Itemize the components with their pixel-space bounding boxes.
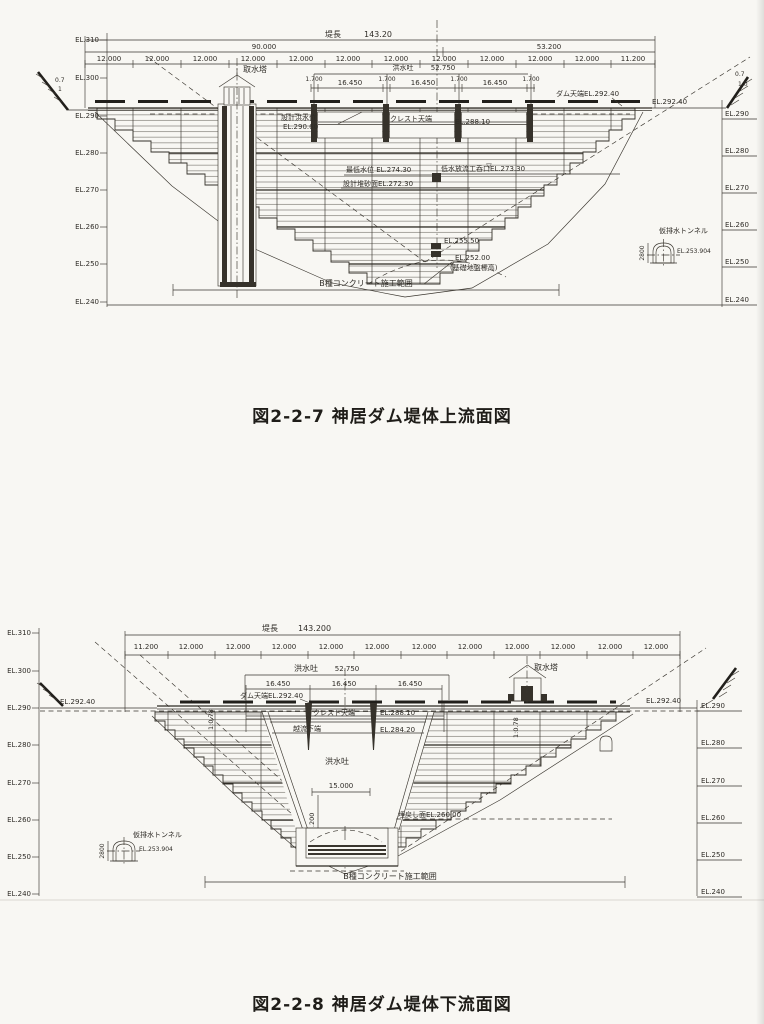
slope-ratio-den: 1.0: [738, 81, 748, 88]
fig2-intake-tower: 取水塔: [507, 656, 558, 703]
span-left-value: 90.000: [252, 43, 277, 51]
bay-width: 16.450: [411, 79, 436, 87]
axis-label: EL.290: [75, 112, 99, 120]
crest-top-elevation: EL.288.10: [455, 118, 490, 126]
tunnel-label: 仮排水トンネル: [133, 830, 182, 839]
outlet-arch: [600, 736, 612, 751]
axis-label: EL.300: [75, 74, 99, 82]
crest-elevation-right: EL.292.40: [646, 697, 681, 705]
crest-top-label: クレスト天端: [390, 114, 432, 123]
axis-label: EL.260: [7, 816, 31, 824]
fig2-spillway-dimension: 洪水吐 52.750 16.450 16.450 16.450: [245, 663, 449, 712]
block-width-end: 11.200: [621, 55, 646, 63]
bay-width: 16.450: [483, 79, 508, 87]
overflow-bottom-elevation: EL.284.20: [380, 726, 415, 734]
block-width: 12.000: [644, 643, 669, 651]
design-flood-level-label: 設計洪水位: [281, 113, 316, 122]
tunnel-height: 2800: [99, 843, 106, 858]
fig2-b-concrete-range: B種コンクリート施工範囲: [205, 871, 625, 888]
block-width: 12.000: [145, 55, 170, 63]
block-width: 12.000: [365, 643, 390, 651]
design-flood-level-value: EL.290.60: [283, 123, 318, 131]
block-width: 12.000: [319, 643, 344, 651]
fig1-right-abutment-slope: 0.7 1.0: [727, 71, 752, 108]
fig1-spillway-dimension: 洪水吐 52.750 1.700 1.700 1.700 1.700 16.45…: [305, 63, 539, 104]
block-width: 12.000: [97, 55, 122, 63]
intake-tower-label: 取水塔: [534, 662, 558, 672]
backfill-label: 埋戻し面EL.260.00: [398, 810, 461, 819]
fig1-diversion-tunnel: 2800 仮排水トンネル EL.253.904: [639, 226, 711, 267]
axis-label: EL.270: [7, 779, 31, 787]
crest-top-label: クレスト天端: [313, 708, 355, 717]
dam-length-value: 143.200: [298, 624, 331, 633]
block-width: 12.000: [480, 55, 505, 63]
dam-crest-label: ダム天端EL.292.40: [240, 691, 303, 700]
slope-ratio-num: 0.7: [735, 71, 745, 78]
spillway-value: 52.750: [431, 64, 456, 72]
tunnel-elevation: EL.253.904: [677, 248, 711, 255]
axis-label: EL.270: [75, 186, 99, 194]
block-width: 12.000: [598, 643, 623, 651]
fig2-backfill: 埋戻し面EL.260.00: [396, 810, 612, 819]
fig2-diversion-tunnel: 2800 仮排水トンネル EL.253.904: [99, 830, 182, 866]
b-concrete-label: B種コンクリート施工範囲: [343, 871, 437, 881]
block-width: 12.000: [272, 643, 297, 651]
fig2-left-elevation-axis: EL.310 EL.300 EL.290 EL.280 EL.270 EL.26…: [7, 628, 39, 898]
tunnel-height: 2800: [639, 245, 646, 260]
b-concrete-label: B種コンクリート施工範囲: [319, 278, 413, 288]
block-width: 12.000: [179, 643, 204, 651]
crest-elevation-right: EL.292.40: [652, 98, 687, 106]
dam-length-value: 143.20: [364, 30, 392, 39]
axis-label: EL.250: [75, 260, 99, 268]
dam-length-label: 堤長: [262, 623, 278, 633]
block-width: 12.000: [336, 55, 361, 63]
spillway-label: 洪水吐: [393, 63, 414, 72]
figure-2-2-7-caption: 図2-2-7 神居ダム堤体上流面図: [0, 402, 764, 427]
outlet-inlet-label: 低水放流工呑口EL.273.30: [441, 164, 525, 173]
block-width: 12.000: [432, 55, 457, 63]
block-width: 12.000: [226, 643, 251, 651]
axis-label: EL.270: [701, 777, 725, 785]
gate-pier: [527, 104, 533, 142]
fig2-block-dimension-row: 11.200 12.000 12.000 12.000 12.000 12.00…: [125, 643, 680, 659]
min-water-level: 最低水位 EL.274.30: [346, 165, 411, 174]
axis-label: EL.250: [725, 258, 749, 266]
chute-label: 洪水吐: [325, 756, 349, 766]
block-width: 12.000: [193, 55, 218, 63]
axis-label: EL.280: [7, 741, 31, 749]
fig2-dam-length-dimension: 堤長 143.200: [125, 623, 680, 712]
axis-label: EL.270: [725, 184, 749, 192]
block-width: 12.000: [384, 55, 409, 63]
dam-length-label: 堤長: [325, 29, 341, 39]
axis-label: EL.280: [701, 739, 725, 747]
crest-elevation-left: EL.292.40: [60, 698, 95, 706]
block-width: 12.000: [241, 55, 266, 63]
axis-label: EL.260: [725, 221, 749, 229]
block-width: 12.000: [505, 643, 530, 651]
overflow-bottom-label: 越流下端: [293, 724, 321, 733]
el-252-label: EL.252.00: [455, 254, 490, 262]
block-width: 12.000: [458, 643, 483, 651]
bay-width: 16.450: [398, 680, 423, 688]
axis-label: EL.240: [75, 298, 99, 306]
scanned-page: EL.310 EL.300 EL.290 EL.280 EL.270 EL.26…: [0, 0, 764, 1024]
axis-label: EL.250: [7, 853, 31, 861]
axis-label: EL.250: [701, 851, 725, 859]
slope-gradient: 1:0.78: [207, 709, 215, 730]
axis-label: EL.290: [725, 110, 749, 118]
axis-label: EL.240: [7, 890, 31, 898]
slope-ratio-den: 1: [58, 86, 62, 93]
chute-width: 15.000: [329, 782, 354, 790]
fig1-right-elevation-axis: EL.290 EL.280 EL.270 EL.260 EL.250 EL.24…: [722, 100, 757, 307]
axis-label: EL.310: [7, 629, 31, 637]
bay-width: 16.450: [332, 680, 357, 688]
gate-pier: [383, 104, 389, 142]
fig2-crest: EL.292.40 EL.292.40 ダム天端EL.292.40: [40, 691, 700, 711]
block-width: 12.000: [575, 55, 600, 63]
axis-label: EL.260: [701, 814, 725, 822]
fig1-span-dimension-row: 90.000 53.200: [85, 43, 655, 57]
block-width-first: 11.200: [134, 643, 159, 651]
axis-label: EL.300: [7, 667, 31, 675]
tunnel-elevation: EL.253.904: [139, 846, 173, 853]
block-width: 12.000: [289, 55, 314, 63]
figure-2-2-7-upstream-elevation-drawing: EL.310 EL.300 EL.290 EL.280 EL.270 EL.26…: [0, 0, 764, 340]
outlet-gate: [432, 173, 441, 182]
bay-width: 16.450: [338, 79, 363, 87]
fig1-block-dimension-row: 12.000 12.000 12.000 12.000 12.000 12.00…: [85, 55, 655, 68]
fig1-left-elevation-axis: EL.310 EL.300 EL.290 EL.280 EL.270 EL.26…: [75, 33, 107, 307]
bay-width: 16.450: [266, 680, 291, 688]
axis-label: EL.290: [701, 702, 725, 710]
axis-label: EL.280: [75, 149, 99, 157]
axis-label: EL.240: [725, 296, 749, 304]
fig2-stilling-basin: [290, 826, 404, 871]
foundation-note: (基礎地盤標高): [450, 263, 498, 272]
dam-crest-label: ダム天端EL.292.40: [556, 89, 619, 98]
figure-2-2-8-caption: 図2-2-8 神居ダム堤体下流面図: [0, 990, 764, 1015]
axis-label: EL.260: [75, 223, 99, 231]
slope-ratio-num: 0.7: [55, 77, 65, 84]
axis-label: EL.240: [701, 888, 725, 896]
figure-2-2-8-downstream-elevation-drawing: EL.310 EL.300 EL.290 EL.280 EL.270 EL.26…: [0, 600, 764, 930]
axis-label: EL.280: [725, 147, 749, 155]
block-width: 12.000: [528, 55, 553, 63]
fig2-left-abutment-slope: [37, 683, 63, 706]
spillway-value: 52.750: [335, 665, 360, 673]
block-width: 12.000: [412, 643, 437, 651]
tunnel-label: 仮排水トンネル: [659, 226, 708, 235]
span-right-value: 53.200: [537, 43, 562, 51]
sediment-surface-label: 設計堆砂面EL.272.30: [343, 179, 413, 188]
fig2-right-elevation-axis: EL.290 EL.280 EL.270 EL.260 EL.250 EL.24…: [697, 700, 742, 897]
axis-label: EL.290: [7, 704, 31, 712]
el-255-label: EL.255.50: [444, 237, 479, 245]
slope-gradient: 1:0.78: [512, 717, 520, 738]
block-width: 12.000: [551, 643, 576, 651]
spillway-label: 洪水吐: [294, 663, 318, 673]
intake-tower-label: 取水塔: [243, 64, 267, 74]
crest-top-elevation: EL.288.10: [380, 709, 415, 717]
